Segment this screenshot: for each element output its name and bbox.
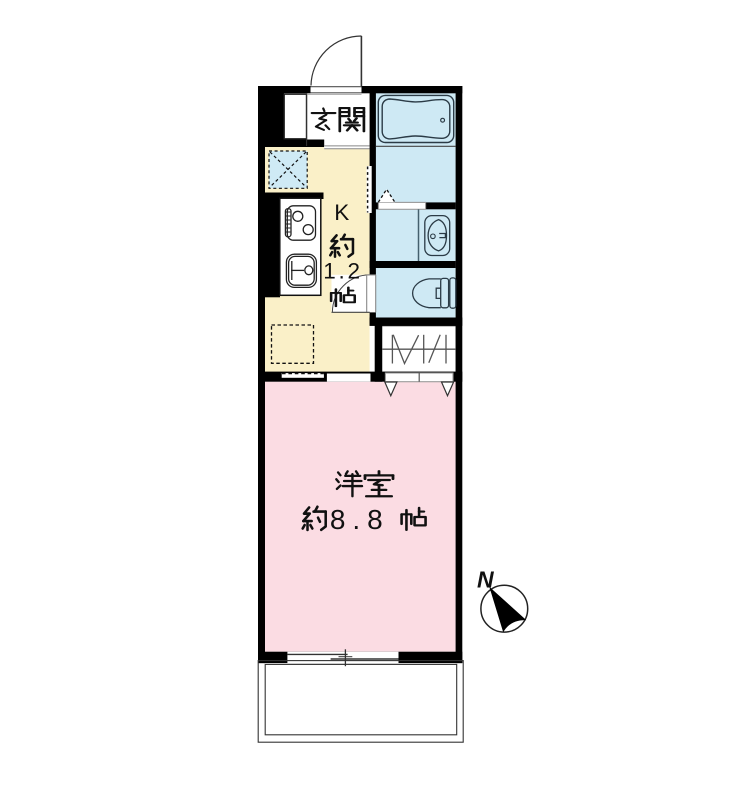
svg-text:K: K bbox=[334, 200, 349, 225]
svg-text:1.2: 1.2 bbox=[323, 259, 362, 284]
svg-text:N: N bbox=[477, 566, 494, 592]
svg-text:8.8: 8.8 bbox=[330, 504, 390, 535]
